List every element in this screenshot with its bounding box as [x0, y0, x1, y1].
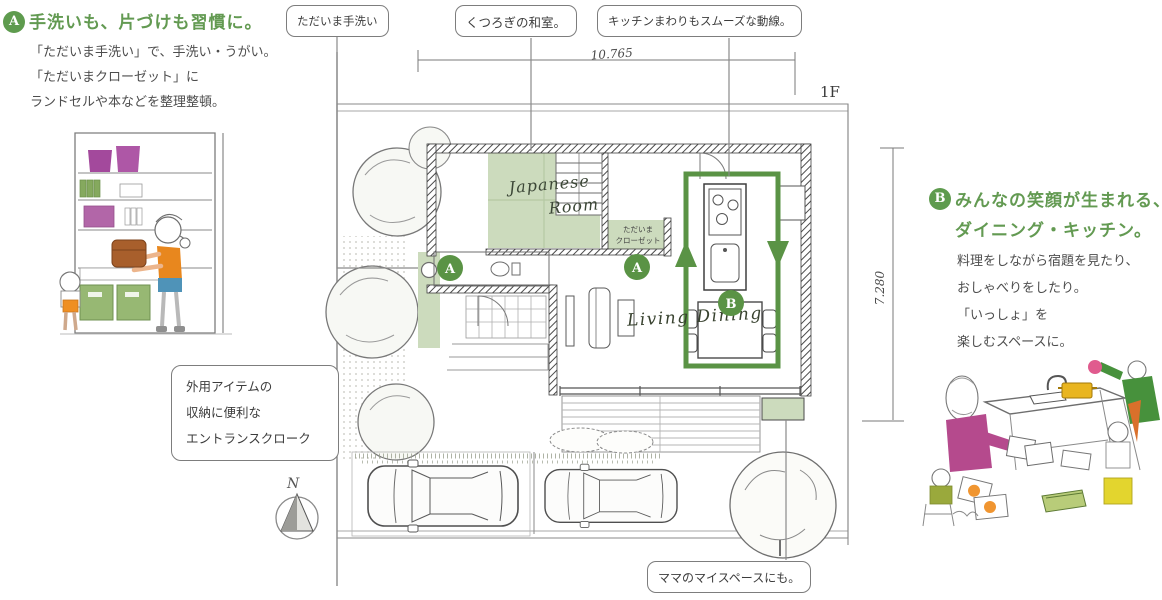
section-b-body: 料理をしながら宿題を見たり、 おしゃべりをしたり。 「いっしょ」を 楽しむスペー…: [957, 248, 1138, 356]
section-a-body: 「ただいま手洗い」で、手洗い・うがい。 「ただいまクローゼット」に ランドセルや…: [30, 40, 276, 115]
loop-arrow-down: [767, 241, 789, 267]
section-b-title: みんなの笑顔が生まれる、 ダイニング・キッチン。: [955, 186, 1162, 246]
illustration-family-kitchen: [923, 360, 1160, 526]
callout-entrance-cloak: 外用アイテムの 収納に便利な エントランスクローク: [171, 365, 339, 461]
svg-text:B: B: [726, 297, 737, 312]
svg-text:クローゼット: クローゼット: [616, 235, 661, 245]
svg-text:ただいま: ただいま: [623, 225, 653, 234]
section-b-body-line: おしゃべりをしたり。: [957, 275, 1138, 302]
dimension-right-label: 7.280: [873, 270, 887, 305]
car-1: [368, 460, 518, 532]
window-band: [560, 386, 800, 396]
dimension-top-label: 10.765: [590, 46, 633, 63]
porch-steps: [447, 344, 548, 370]
compass: N: [276, 476, 318, 539]
callout-kitchen-flow: キッチンまわりもスムーズな動線。: [597, 5, 802, 37]
kitchen-island: [704, 184, 746, 290]
illustration-shelf-child: [60, 133, 232, 334]
section-a-body-line: ランドセルや本などを整理整頓。: [30, 90, 276, 115]
callout-tadaima-tearai: ただいま手洗い: [286, 5, 389, 37]
section-a-badge: A: [3, 11, 25, 33]
section-b-body-line: 楽しむスペースに。: [957, 329, 1138, 356]
section-a-body-line: 「ただいま手洗い」で、手洗い・うがい。: [30, 40, 276, 65]
section-b-badge: B: [929, 188, 951, 210]
svg-text:A: A: [444, 262, 456, 277]
tree-bottom-right: [730, 452, 836, 558]
parking: [352, 452, 677, 536]
callout-washitsu: くつろぎの和室。: [455, 5, 577, 37]
section-a-body-line: 「ただいまクローゼット」に: [30, 65, 276, 90]
callout-entrance-cloak-line: エントランスクローク: [186, 426, 328, 452]
loop-arrow-up: [675, 241, 697, 267]
mama-desk-fill: [762, 398, 804, 420]
floor-label: 1F: [820, 83, 840, 101]
refrigerator: [779, 186, 805, 220]
compass-n-label: N: [286, 476, 300, 492]
car-2: [545, 464, 677, 527]
section-a-title: 手洗いも、片づけも習慣に。: [29, 8, 263, 38]
callout-entrance-cloak-line: 外用アイテムの: [186, 374, 328, 400]
section-b-body-line: 料理をしながら宿題を見たり、: [957, 248, 1138, 275]
callout-mama-space: ママのマイスペースにも。: [647, 561, 811, 593]
floorplan-infographic: 10.765 7.280 1F: [0, 0, 1162, 600]
section-b-title-line: みんなの笑顔が生まれる、: [955, 186, 1162, 216]
callout-entrance-cloak-line: 収納に便利な: [186, 400, 328, 426]
shrubs: [550, 428, 653, 453]
living-furniture: [566, 288, 634, 348]
section-b-body-line: 「いっしょ」を: [957, 302, 1138, 329]
section-b-title-line: ダイニング・キッチン。: [955, 216, 1162, 246]
svg-text:A: A: [631, 261, 643, 276]
